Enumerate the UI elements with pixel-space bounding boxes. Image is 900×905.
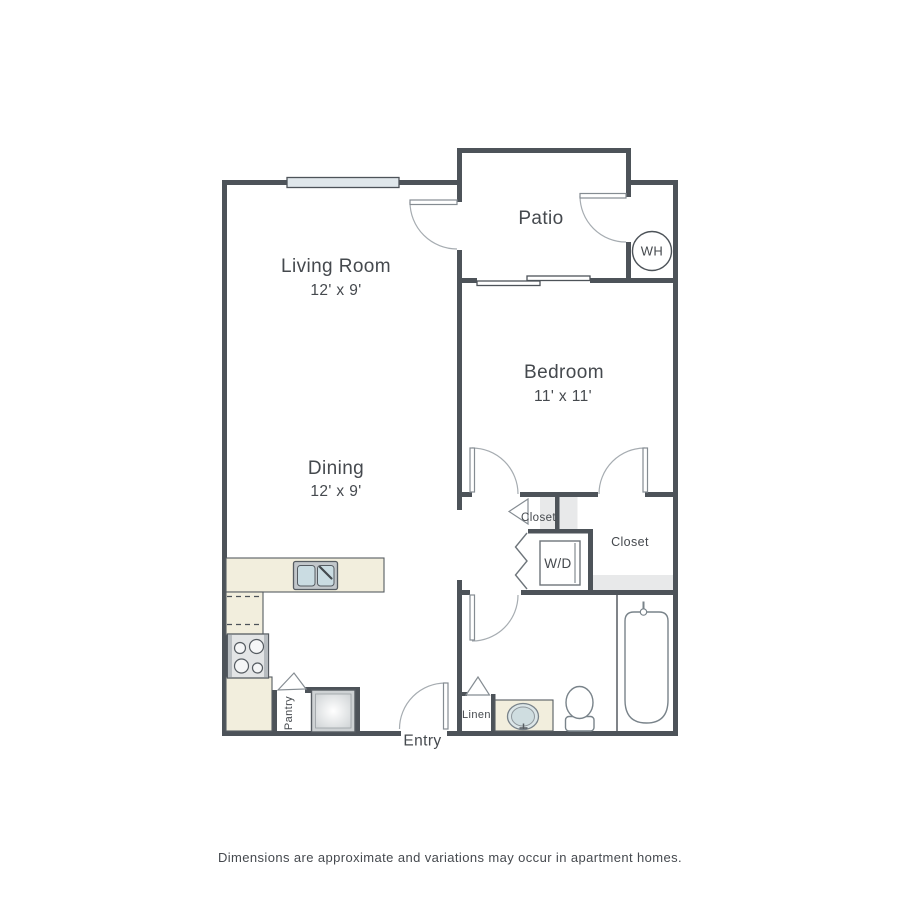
bedroom-closet-door-leaf [643,448,648,492]
patio-door-leaf [410,200,457,205]
sliding-door-outer-panel [527,276,590,281]
bathtub [625,612,668,723]
bathtub-faucet [640,609,646,615]
sink-basin-left [298,566,316,587]
wall-top-mid [399,180,460,185]
patio-wall-right-upper [626,148,631,197]
sink-basin-right [318,566,335,587]
wd-accordion-door [516,533,528,589]
bedroom-closet-door-arc [599,448,645,494]
stove [228,634,269,678]
linen-bifold-door [466,677,490,695]
bedroom-door-arc [472,448,518,494]
living-room-window [287,178,399,188]
bathroom-sink-inner [512,707,535,726]
shelf-bedroom-closet-bottom [593,575,673,590]
washer-dryer-unit: W/D [540,541,580,585]
refrigerator [312,690,356,732]
patio-label: Patio [518,208,563,229]
bathroom-door-arc [472,595,518,641]
patio-door-arc [410,202,457,249]
dining-dims: 12' x 9' [310,483,361,500]
kitchen [226,558,384,732]
kitchen-sink [294,562,338,590]
bath-wall-stub [457,590,470,595]
wall-outer-left [222,180,227,736]
living-room-label: Living Room [281,256,391,277]
wd-closet-wall-top [528,529,590,534]
living-room-dims: 12' x 9' [310,282,361,299]
bathroom-door-leaf [470,595,475,640]
refrigerator-inner [316,694,352,728]
water-heater-label: WH [641,244,663,259]
bedroom-closet-label: Closet [611,535,649,549]
kitchen-counter-left-lower [226,677,272,731]
pantry-wall-left [272,690,277,731]
bedroom-label: Bedroom [524,362,604,383]
dining-label: Dining [308,458,364,479]
pantry-bifold-door [278,673,306,690]
stove-burner-3 [235,659,249,673]
patio-wall-right-lower [626,242,631,283]
stove-rail-right [264,635,268,678]
wall-top-left [222,180,288,185]
stove-burner-2 [250,640,264,654]
entry-door-leaf [444,683,449,729]
entry-label: Entry [403,733,441,750]
floor-plan-drawing: W/D WH Living Room 12' x 9' Dining 12' x… [0,0,900,900]
wall-top-right [626,180,678,185]
wall-bottom-right [447,731,678,736]
disclaimer-text: Dimensions are approximate and variation… [218,850,682,865]
walls [222,148,678,736]
sliding-door-inner-panel [477,281,540,286]
shelf-bedroom-closet-left [560,497,578,529]
stove-body [228,634,269,678]
bathroom [495,595,668,731]
bedroom-sliding-door [477,276,590,286]
stove-rail-left [228,635,232,678]
bedroom-door-leaf [470,448,475,492]
bedroom-south-stub [457,492,472,497]
water-heater: WH [633,232,672,271]
linen-label: Linen [462,709,491,721]
hall-wall-upper [457,281,462,510]
floor-plan-page: W/D WH Living Room 12' x 9' Dining 12' x… [0,0,900,900]
bedroom-wall-top-right [590,278,678,283]
entry-door-arc [400,683,446,729]
patio-wall-left-upper [457,148,462,202]
wd-label: W/D [544,556,571,571]
wall-outer-right [673,180,678,736]
kitchen-counter-left-upper [226,592,263,635]
kitchen-nook-wall-right [355,687,360,731]
pantry-label: Pantry [283,696,295,730]
hall-closet-label: Closet [521,512,556,524]
room-labels: Living Room 12' x 9' Dining 12' x 9' Bed… [281,208,649,750]
bedroom-south-right [645,492,678,497]
patio-wall-top [457,148,631,153]
toilet-bowl [566,687,593,719]
bedroom-dims: 11' x 11' [534,388,592,405]
wh-door-leaf [580,194,626,199]
bath-wall-main [521,590,678,595]
wd-closet-wall-right [588,529,593,595]
stove-burner-4 [253,663,263,673]
stove-burner-1 [235,643,246,654]
wh-door-arc [580,196,626,242]
